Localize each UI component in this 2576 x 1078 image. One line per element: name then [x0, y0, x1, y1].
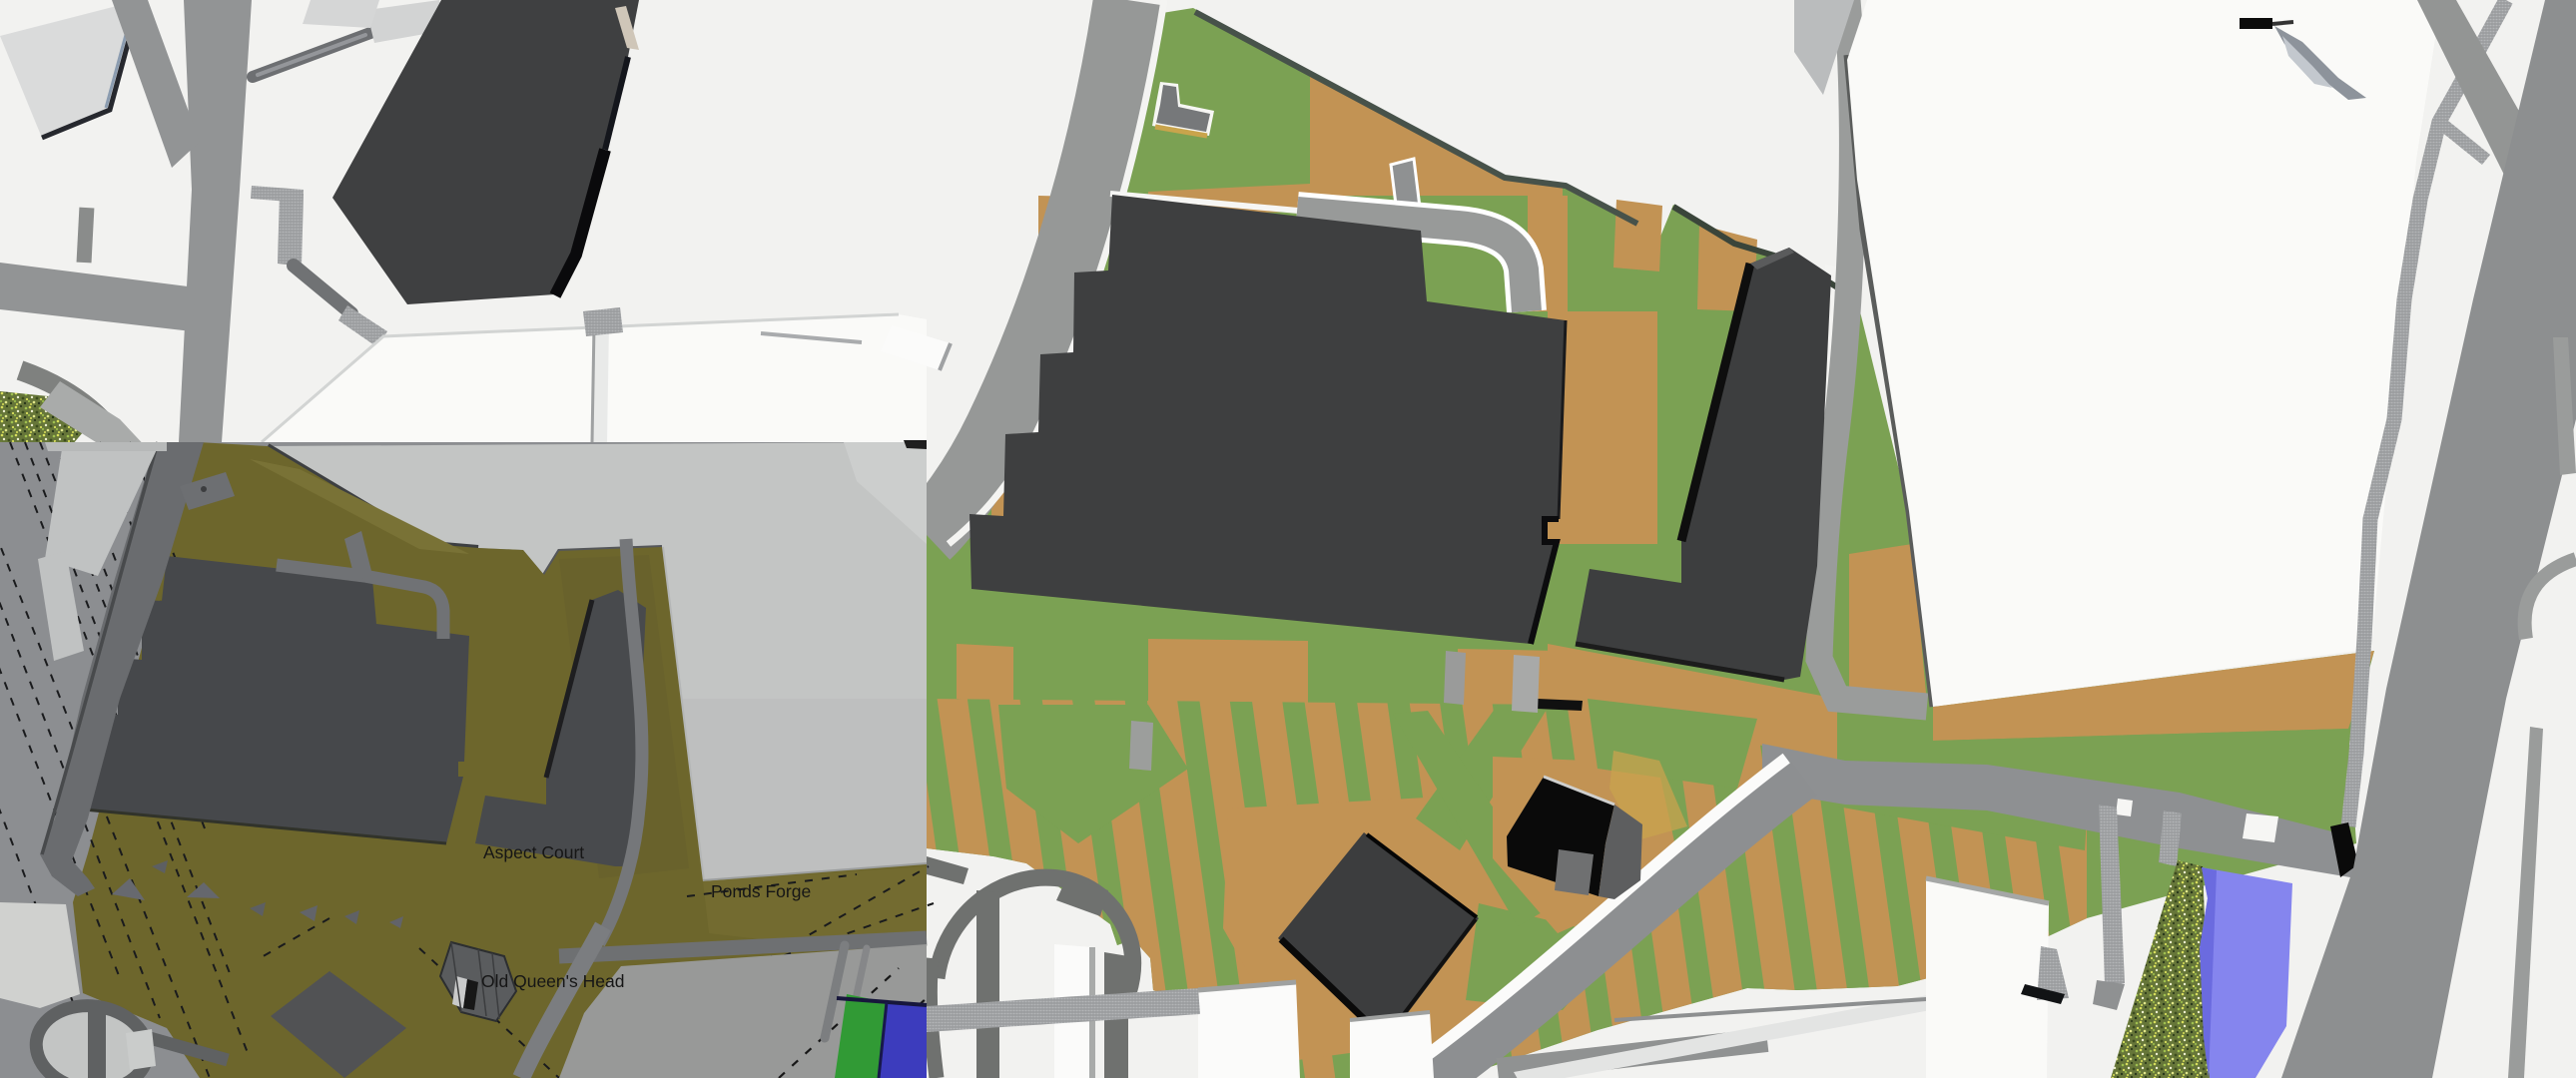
- svg-text:Ponds Forge: Ponds Forge: [711, 881, 811, 901]
- svg-text:Old Queen's Head: Old Queen's Head: [481, 971, 624, 991]
- svg-text:Aspect Court: Aspect Court: [483, 842, 584, 862]
